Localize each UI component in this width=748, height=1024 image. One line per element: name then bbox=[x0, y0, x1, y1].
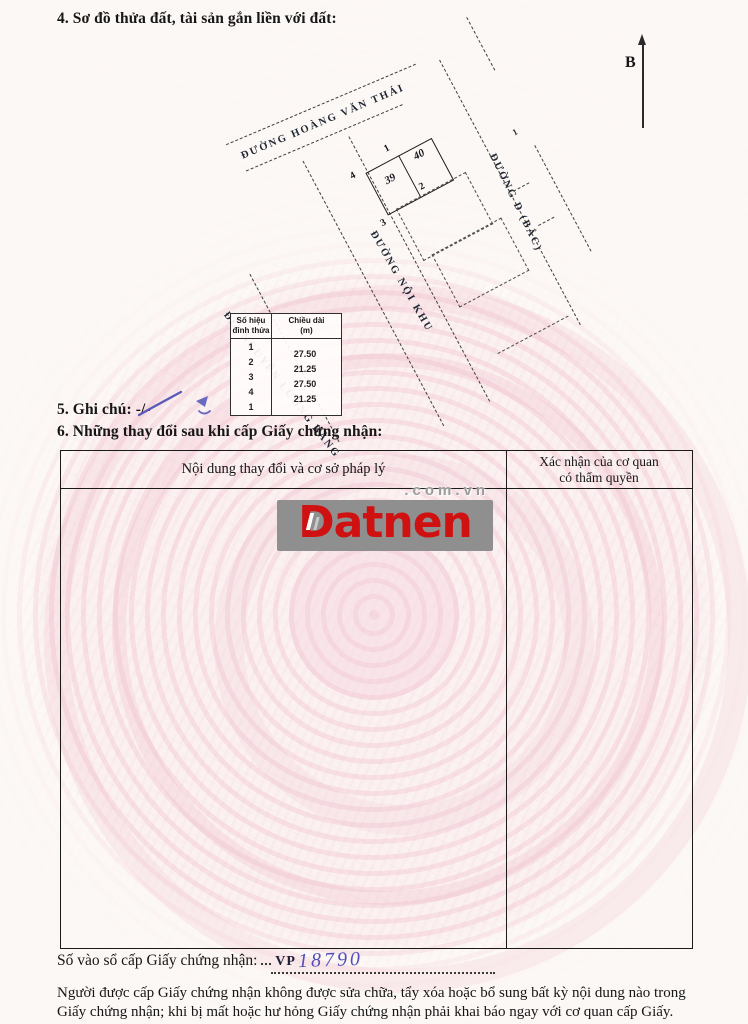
vertex-label-3: 3 bbox=[379, 217, 389, 229]
registry-label: Số vào sổ cấp Giấy chứng nhận: bbox=[57, 952, 257, 969]
road-edge-dashed-line bbox=[534, 145, 591, 251]
vertex-table-column-divider bbox=[271, 339, 272, 415]
vertex-number: 4 bbox=[231, 387, 271, 397]
registry-number-line: Số vào sổ cấp Giấy chứng nhận: VP18790 bbox=[57, 948, 495, 974]
vertex-table-col1-header: Số hiệu đỉnh thửa bbox=[231, 314, 272, 338]
datnen-watermark-logo: .com.vn Datnen bbox=[277, 482, 493, 551]
section4-title: 4. Sơ đồ thửa đất, tài sản gắn liền với … bbox=[57, 10, 337, 28]
edge-length: 27.50 bbox=[275, 349, 335, 359]
edge-length: 21.25 bbox=[275, 394, 335, 404]
north-arrow-shaft bbox=[642, 43, 644, 128]
registry-entry: VP18790 bbox=[271, 948, 495, 974]
vertex-number: 1 bbox=[231, 342, 271, 352]
dotted-leader bbox=[261, 950, 271, 965]
vertex-table-body: 1 2 3 4 1 27.50 21.25 27.50 21.25 bbox=[231, 339, 341, 415]
vertex-table-col2-header: Chiều dài (m) bbox=[272, 314, 341, 338]
vertex-table-header: Số hiệu đỉnh thửa Chiều dài (m) bbox=[231, 314, 341, 339]
changes-table-column-divider bbox=[506, 451, 507, 948]
certificate-page: 4. Sơ đồ thửa đất, tài sản gắn liền với … bbox=[0, 0, 748, 1024]
changes-col2-header: Xác nhận của cơ quan có thẩm quyền bbox=[506, 451, 692, 488]
vertex-number: 3 bbox=[231, 372, 271, 382]
parcel-corner-tick bbox=[538, 217, 554, 226]
edge-length: 21.25 bbox=[275, 364, 335, 374]
blue-pen-marks bbox=[133, 386, 228, 422]
north-arrow: B bbox=[630, 34, 656, 134]
registry-prefix-stamp: VP bbox=[275, 954, 296, 969]
vertex-number: 1 bbox=[231, 402, 271, 412]
north-label: B bbox=[625, 54, 636, 72]
adjacent-parcel-dashed-line bbox=[497, 316, 568, 354]
section6-title: 6. Những thay đổi sau khi cấp Giấy chứng… bbox=[57, 423, 383, 441]
vertex-number: 2 bbox=[231, 357, 271, 367]
vertex-length-table: Số hiệu đỉnh thửa Chiều dài (m) 1 2 3 4 … bbox=[230, 313, 342, 416]
handwritten-registry-number: 18790 bbox=[298, 948, 364, 973]
parcel-corner-tick bbox=[513, 182, 529, 191]
footer-warning-text: Người được cấp Giấy chứng nhận không đượ… bbox=[57, 984, 697, 1022]
edge-length: 27.50 bbox=[275, 379, 335, 389]
